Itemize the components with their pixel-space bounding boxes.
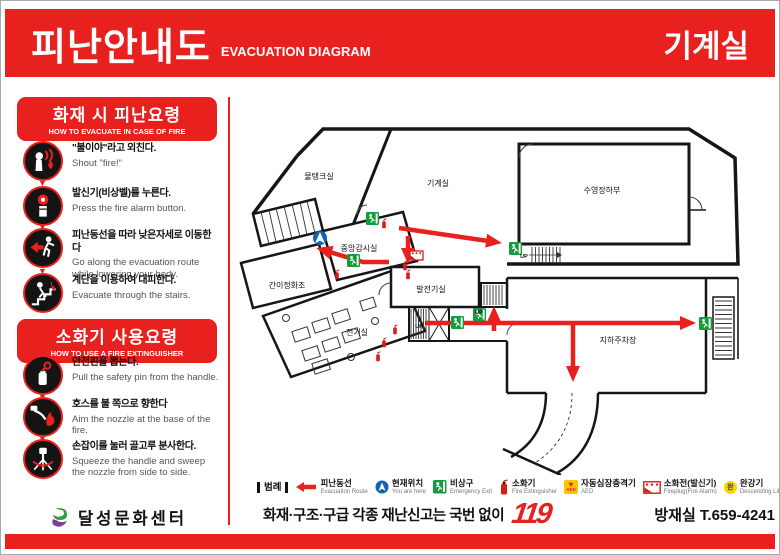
fire-step-1: "불이야"라고 외친다. Shout "fire!" [23,141,219,181]
fire-section-title-ko: 화재 시 피난요령 [17,101,217,126]
shout-icon [23,141,63,181]
legend-ko: 비상구 [450,479,492,488]
legend-en: Evacuation Route [320,489,367,496]
fire-section-title: 화재 시 피난요령 HOW TO EVACUATE IN CASE OF FIR… [17,97,217,141]
step-text-ko: 계단을 이용하여 대피한다. [72,275,190,288]
step-text-ko: 발신기(비상벨)를 누른다. [72,188,186,201]
legend-item-descending-life-line: 완 완강기Descending Life Line [724,479,780,496]
step-text-en: Press the fire alarm button. [72,203,186,215]
room-label-monitoring: 중앙감시실 [341,243,378,253]
legend-en: Descending Life Line [740,489,780,496]
emergency-exit-icon [699,317,712,330]
evacuation-route-icon [23,228,63,268]
current-location-icon [313,231,327,245]
legend-en: You are here [392,489,426,496]
legend-ko: 자동심장충격기 [581,479,636,488]
step-text-en: Shout "fire!" [72,158,156,170]
org-logo-icon [47,505,71,529]
current-location-icon [375,480,389,494]
legend-ko: 완강기 [740,479,780,488]
room-label-electrical: 전기실 [346,327,368,337]
bottom-red-bar [5,534,775,549]
emergency-exit-icon [366,212,379,225]
fireplug-icon [410,251,423,260]
up-label: UP [520,254,528,260]
room-label-parking: 지하주차장 [600,335,637,345]
up-label: UP [415,324,423,330]
legend-item-evacuation-route: 피난동선Evacuation Route [295,479,367,496]
fire-step-4: 계단을 이용하여 대피한다. Evacuate through the stai… [23,273,219,313]
step-text-ko: 호스를 불 쪽으로 향한다 [72,399,219,412]
step-text-en: Evacuate through the stairs. [72,290,190,302]
aed-icon: ♥AED [564,480,578,494]
legend-item-fire-extinguisher: 소화기Fire Extinguisher [499,479,557,496]
legend-bar: 범례 피난동선Evacuation Route 현재위치You are here… [257,473,777,501]
emergency-report-text: 화재·구조·구급 각종 재난신고는 국번 없이 [263,504,504,525]
legend-item-aed: ♥AED 자동심장충격기AED [564,479,636,496]
squeeze-handle-icon [23,439,63,479]
evacuation-route-line [399,228,495,242]
legend-item-emergency-exit: 비상구Emergency Exit [433,479,492,496]
room-label-generator: 발전기실 [416,284,445,294]
fire-section-title-en: HOW TO EVACUATE IN CASE OF FIRE [17,127,217,136]
stairs-direction-arrow [557,252,562,258]
legend-en: AED [581,489,636,496]
aim-nozzle-icon [23,397,63,437]
emergency-exit-icon [347,254,360,267]
legend-ko: 소화전(발신기) [664,479,717,488]
evacuation-poster: 피난안내도 EVACUATION DIAGRAM 기계실 화재 시 피난요령 H… [0,0,780,555]
evacuation-route-icon [295,481,317,493]
page-title: 피난안내도 [31,16,211,71]
emergency-exit-icon [451,316,464,329]
legend-item-current-location: 현재위치You are here [375,479,426,496]
legend-ko: 소화기 [512,479,557,488]
fire-extinguisher-icon [499,479,509,495]
legend-ko: 현재위치 [392,479,426,488]
step-text-en: Aim the nozzle at the base of the fire. [72,414,219,437]
floor-plan: 물탱크실 기계실 수영장하부 중앙감시실 간이정화조 발전기실 전기실 지하주차… [229,87,780,475]
room-label-septic: 간이정화조 [269,280,306,290]
legend-item-fireplug: 소화전(발신기)Fireplug(Fire Alarm) [643,479,717,496]
step-text-ko: 손잡이를 눌러 골고루 분사한다. [72,441,219,454]
room-label-machine-room: 기계실 [427,178,449,188]
location-title: 기계실 [663,21,749,66]
org-name: 달성문화센터 [78,505,187,529]
page-title-en: EVACUATION DIAGRAM [221,44,371,59]
safety-pin-icon [23,355,63,395]
extinguisher-step-1: 안전핀을 뽑는다. Pull the safety pin from the h… [23,355,219,395]
ext-section-title-ko: 소화기 사용요령 [17,323,217,348]
descending-life-line-icon: 완 [724,481,737,494]
extinguisher-step-2: 호스를 불 쪽으로 향한다 Aim the nozzle at the base… [23,397,219,437]
control-room-phone: 방재실 T.659-4241 [654,504,775,525]
step-text-ko: "불이야"라고 외친다. [72,143,156,156]
alarm-button-icon [23,186,63,226]
extinguisher-step-3: 손잡이를 눌러 골고루 분사한다. Squeeze the handle and… [23,439,219,479]
emergency-number: 119 [511,503,551,525]
legend-en: Emergency Exit [450,489,492,496]
instruction-sidebar: 화재 시 피난요령 HOW TO EVACUATE IN CASE OF FIR… [17,97,221,533]
legend-en: Fire Extinguisher [512,489,557,496]
emergency-exit-icon [433,480,447,494]
room-label-pool-lower: 수영장하부 [584,185,621,195]
fire-step-2: 발신기(비상벨)를 누른다. Press the fire alarm butt… [23,186,219,226]
legend-ko: 피난동선 [320,479,367,488]
step-text-ko: 피난동선을 따라 낮은자세로 이동한다 [72,230,219,255]
step-text-en: Pull the safety pin from the handle. [72,372,218,384]
step-text-ko: 안전핀을 뽑는다. [72,357,218,370]
up-label: UP [475,310,483,316]
aed-icon-text: AED [566,488,576,493]
organization-logo: 달성문화센터 [17,505,217,529]
fireplug-icon [643,481,661,494]
stairs-escape-icon [23,273,63,313]
room-label-water-tank: 물탱크실 [304,171,333,181]
legend-en: Fireplug(Fire Alarm) [664,489,717,496]
footer-bar: 화재·구조·구급 각종 재난신고는 국번 없이 119 방재실 T.659-42… [263,503,775,525]
step-text-en: Squeeze the handle and sweep the nozzle … [72,456,219,479]
legend-title: 범례 [257,482,288,493]
header-bar: 피난안내도 EVACUATION DIAGRAM 기계실 [5,9,775,77]
fire-extinguisher-icon [376,352,380,362]
